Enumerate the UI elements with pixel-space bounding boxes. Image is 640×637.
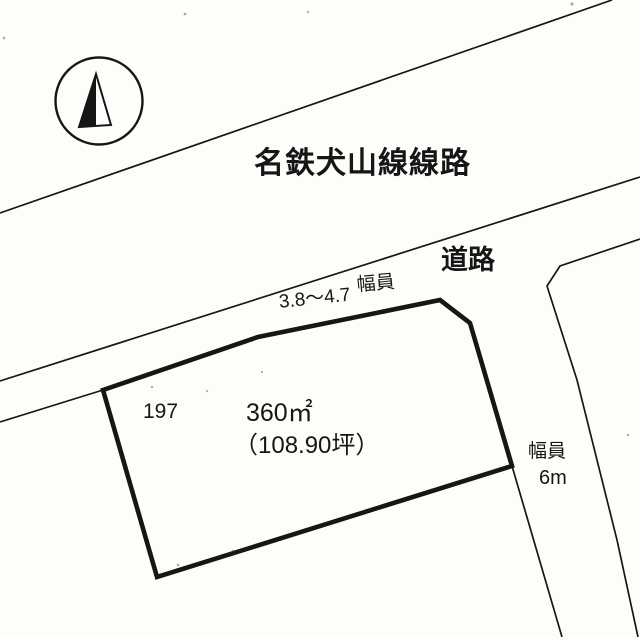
side-road-edge-line — [547, 239, 640, 637]
road-edge-line — [0, 390, 103, 422]
road-label: 道路 — [441, 246, 495, 276]
parcel-number: 197 — [143, 400, 178, 423]
side-road-width-label: 幅員 — [528, 442, 566, 463]
railway-lower-line — [0, 177, 640, 381]
parcel-extension-line — [512, 466, 562, 637]
parcel-area-sqm: 360㎡ — [246, 400, 313, 428]
road-frontage-label: 幅員 — [356, 273, 396, 297]
railway-label: 名鉄犬山線線路 — [254, 147, 471, 180]
plot-diagram-drawing — [0, 0, 640, 637]
parcel-area-tsubo: （108.90坪） — [234, 433, 379, 459]
north-arrow-icon — [56, 58, 143, 145]
plot-diagram: 名鉄犬山線線路 道路 幅員 3.8～4.7 197 360㎡ （108.90坪）… — [0, 0, 640, 637]
side-road-width-value: 6m — [539, 467, 567, 489]
